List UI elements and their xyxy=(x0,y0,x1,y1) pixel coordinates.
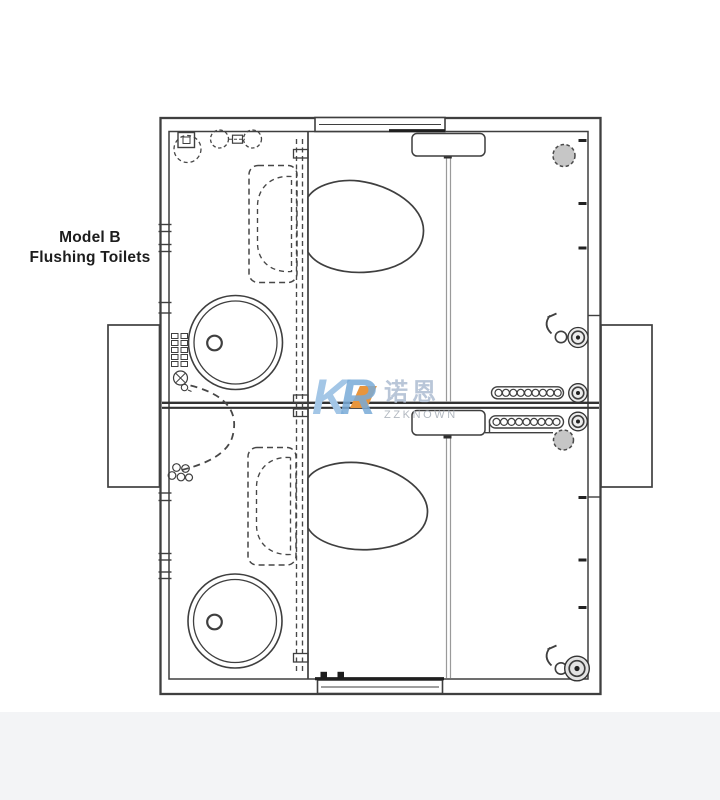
cistern-upper xyxy=(412,134,485,157)
wall-vent-upper xyxy=(553,145,575,167)
grab-bar-upper xyxy=(492,387,564,399)
pipe-knob-lower xyxy=(565,656,590,681)
steps-right xyxy=(601,325,652,487)
pipe-knob-upper xyxy=(568,328,588,348)
door-hinge xyxy=(321,672,328,679)
floor-plan-drawing xyxy=(0,0,720,800)
door-hinge xyxy=(338,672,345,679)
grab-bar-lower xyxy=(490,416,564,428)
steps-left xyxy=(108,325,160,487)
pipe-knob-bar-upper xyxy=(569,384,588,403)
entry-door-top xyxy=(315,118,445,132)
page: Model B Flushing Toilets xyxy=(0,0,720,800)
pipe-knob-bar-lower xyxy=(569,412,588,431)
wall-vent-lower xyxy=(554,430,574,450)
